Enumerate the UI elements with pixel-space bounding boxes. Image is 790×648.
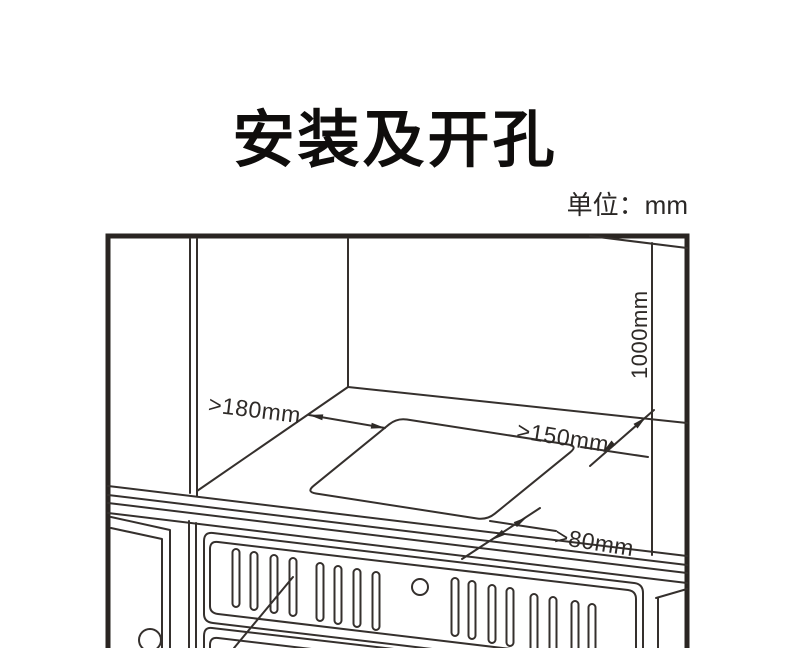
installation-diagram: >180mm >150mm >80mm 1000mm [0,0,790,648]
dimension-label-height-clearance: 1000mm [627,290,653,379]
left-clearance-arrow [309,414,385,428]
left-cabinet-door [111,517,170,648]
vent-hole [412,579,428,595]
vent-leader-line [234,577,293,648]
installation-instruction-page: 安装及开孔 单位：mm [0,0,790,648]
right-cabinet-side [656,589,687,648]
vent-slots [233,549,596,648]
kitchen-line-drawing [0,0,790,648]
left-cabinet-column [189,239,197,648]
door-knob [139,629,161,648]
